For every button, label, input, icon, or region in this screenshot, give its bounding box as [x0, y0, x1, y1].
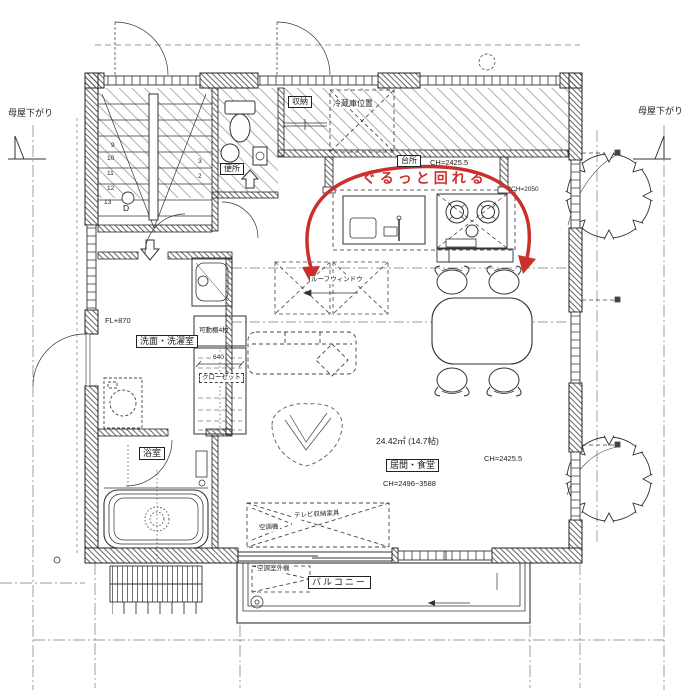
label-bath: 浴室 [139, 447, 165, 460]
note-moya-sagari-left: 母屋下がり [8, 108, 53, 119]
roof-window-leader [304, 290, 358, 296]
stove [437, 194, 507, 248]
label-storage: 収納 [288, 96, 312, 108]
bathtub [104, 470, 208, 560]
label-roof-window: ルーフウィンドウ [310, 276, 364, 284]
window-right-2 [571, 312, 580, 383]
label-fridge-position: 冷蔵庫位置 [332, 99, 374, 109]
label-toilet: 便所 [220, 163, 244, 175]
window-right-3 [571, 452, 580, 520]
label-fl870: FL+870 [105, 316, 131, 325]
staircase [98, 94, 212, 228]
stair-number: 3 [198, 158, 202, 166]
bath-deck [54, 557, 202, 614]
window-left [87, 225, 96, 310]
route-note: ぐるっと回れる [362, 170, 488, 188]
vent-icon [479, 54, 495, 70]
stair-number: 11 [107, 170, 114, 178]
floor-plan: 母屋下がり 母屋下がり 収納 冷蔵庫位置 台所 CH=2425.5 ぐるっと回れ… [0, 0, 700, 700]
label-shelves: 可動棚4枚 [199, 327, 229, 335]
label-closet: クローゼット [199, 373, 244, 383]
dining-set [432, 266, 532, 396]
stair-number: 2 [198, 173, 202, 181]
note-moya-sagari-right: 母屋下がり [638, 106, 683, 117]
label-area: 24.42㎡ (14.7帖) [376, 436, 439, 447]
label-living-ch-range: CH=2496~3588 [383, 479, 436, 488]
label-ac-outdoor: 空調室外機 [256, 565, 291, 573]
sliding-door [238, 552, 392, 561]
label-balcony: バルコニー [308, 576, 371, 589]
label-ac-indoor: 空調機 [258, 523, 280, 532]
stair-number: 10 [107, 155, 114, 163]
roof-windows [275, 262, 388, 314]
label-living-ch: CH=2425.5 [484, 454, 522, 463]
label-ch2050: CH=2050 [511, 186, 539, 194]
moya-sagari-symbol-right [633, 136, 671, 159]
label-living: 居間・食堂 [386, 459, 439, 472]
label-dim-640: 640 [212, 354, 225, 362]
stair-number: 9 [111, 142, 115, 150]
label-kitchen: 台所 [397, 155, 421, 167]
rug [272, 404, 342, 466]
kitchen-island [333, 190, 515, 262]
down-arrow-icon [141, 240, 159, 260]
stair-number: 12 [107, 185, 114, 193]
sofa [248, 332, 356, 376]
window-top-3 [420, 76, 560, 85]
window-right-1 [571, 160, 580, 228]
stair-point-d: D [123, 203, 129, 214]
stair-number: 13 [104, 199, 111, 207]
moya-sagari-symbol-left [8, 136, 46, 159]
label-kitchen-ch: CH=2425.5 [430, 158, 468, 167]
label-washroom: 洗面・洗濯室 [136, 335, 198, 348]
washing-machine [104, 378, 142, 428]
window-bottom [398, 551, 492, 560]
window-top-1 [104, 76, 200, 85]
window-top-2 [258, 76, 378, 85]
